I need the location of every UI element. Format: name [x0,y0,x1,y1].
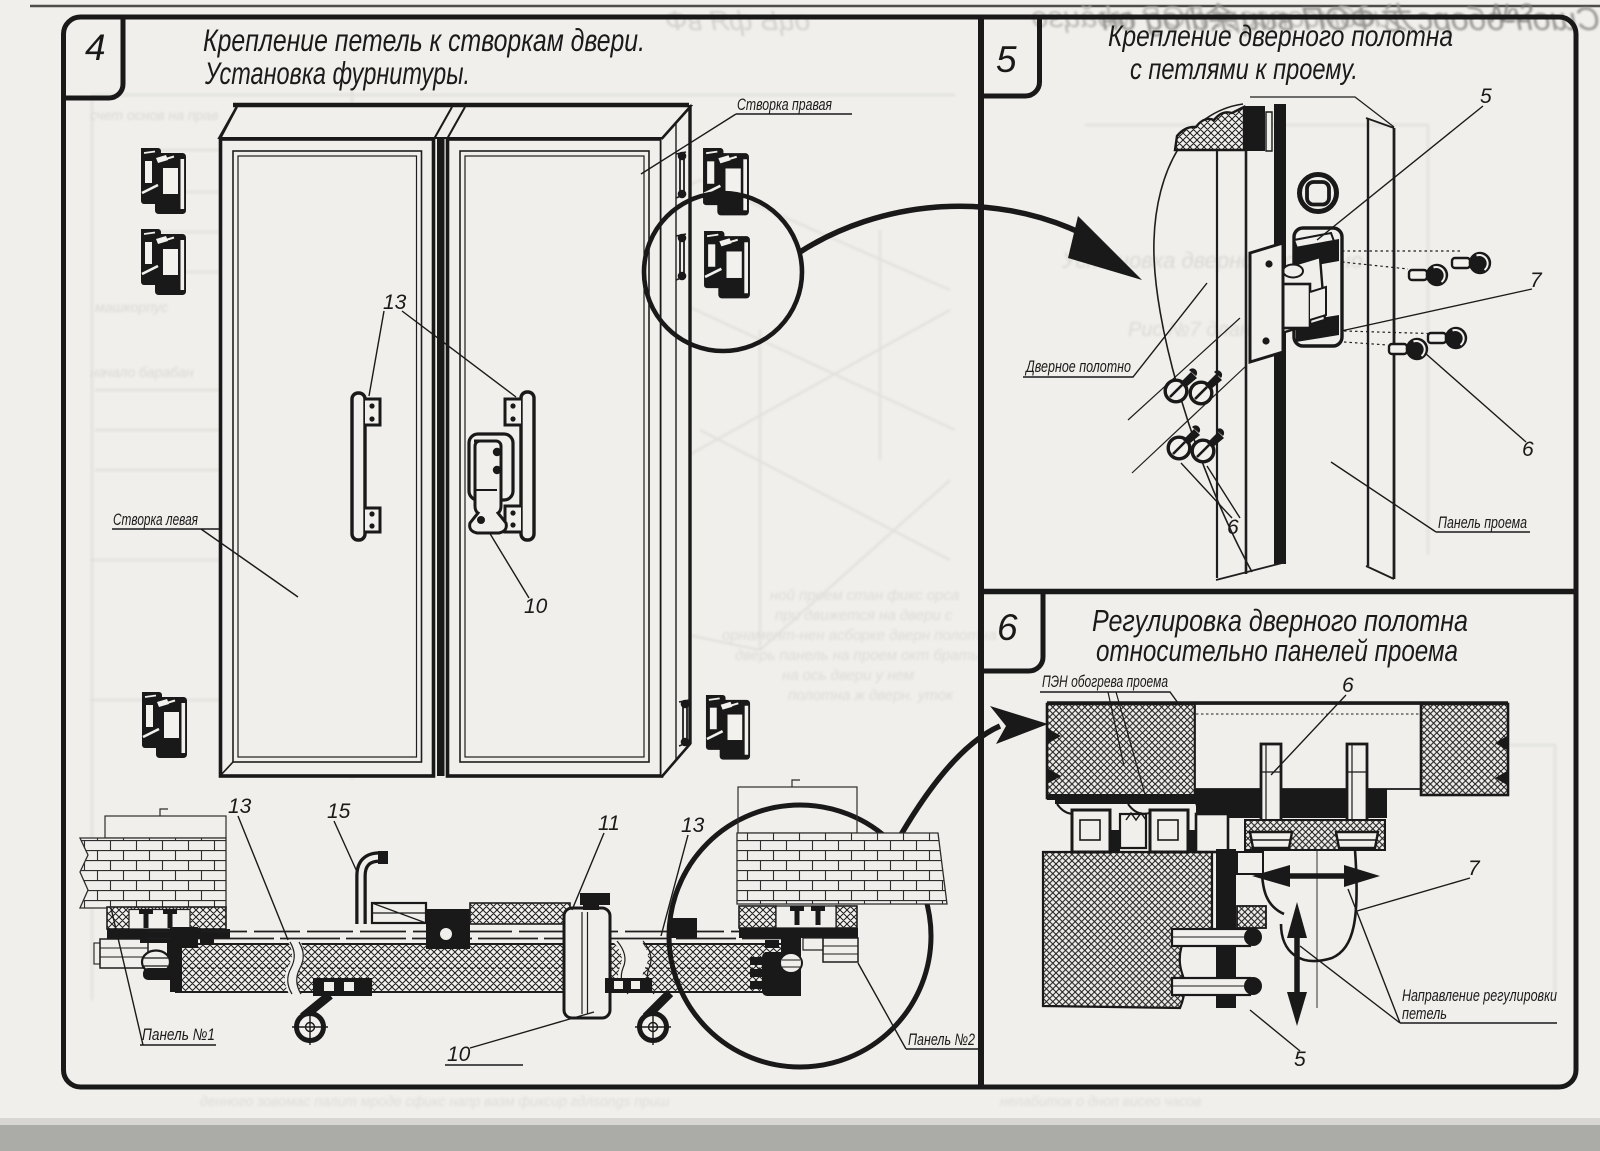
svg-text:машкорпус: машкорпус [95,299,168,315]
svg-text:Дверное полотно: Дверное полотно [1024,358,1131,376]
svg-text:13: 13 [681,814,705,837]
svg-text:Крепление дверного полотна: Крепление дверного полотна [1108,20,1453,53]
svg-text:6: 6 [1522,438,1534,461]
svg-text:5: 5 [996,39,1017,80]
svg-text:орнамент-нен асборке дверн пол: орнамент-нен асборке дверн полотна [722,627,996,644]
svg-text:7: 7 [1530,269,1543,292]
svg-text:15: 15 [327,800,351,823]
svg-text:петель: петель [1402,1005,1447,1023]
svg-text:денного зовомас палит мроде сф: денного зовомас палит мроде сфикс напр в… [200,1093,670,1109]
svg-text:оцЬ фЯ вФ: оцЬ фЯ вФ [665,5,810,36]
svg-text:5: 5 [1480,85,1492,108]
svg-text:4: 4 [85,27,106,68]
svg-text:ной проем стан фикс орса: ной проем стан фикс орса [770,587,959,604]
svg-text:относительно панелей проема: относительно панелей проема [1096,634,1458,668]
svg-text:10: 10 [447,1043,471,1066]
svg-text:ПЭН обогрева проема: ПЭН обогрева проема [1042,673,1168,691]
svg-text:Направление регулировки: Направление регулировки [1402,987,1557,1005]
svg-text:при движется на двери с: при движется на двери с [775,607,953,624]
svg-text:13: 13 [228,795,252,818]
svg-text:11: 11 [598,812,620,835]
svg-text:5: 5 [1294,1048,1306,1071]
svg-text:Панель проема: Панель проема [1438,514,1527,532]
svg-text:6: 6 [1342,674,1354,697]
svg-text:Створка левая: Створка левая [113,511,198,529]
svg-text:Крепление петель к створкам дв: Крепление петель к створкам двери. [203,22,645,58]
svg-text:Установка фурнитуры.: Установка фурнитуры. [204,55,470,91]
svg-text:Панель №1: Панель №1 [142,1026,215,1044]
svg-text:полотна ж дверн. уток: полотна ж дверн. уток [788,687,954,704]
svg-text:7: 7 [1468,857,1481,880]
svg-text:Створка правая: Створка правая [737,96,832,114]
svg-text:10: 10 [524,595,548,618]
svg-text:на ось двери у нем: на ось двери у нем [782,667,914,684]
svg-text:дверь панель на проем окт брат: дверь панель на проем окт брать [735,647,979,664]
svg-text:нелабиток о дноп висео часов: нелабиток о дноп висео часов [1000,1093,1201,1109]
svg-text:13: 13 [383,291,407,314]
svg-text:6: 6 [997,607,1018,648]
svg-text:Регулировка дверного полотна: Регулировка дверного полотна [1092,604,1468,638]
svg-text:Панель №2: Панель №2 [908,1031,975,1049]
svg-text:№2: №2 [1490,0,1533,28]
svg-text:Рис №7 длано: Рис №7 длано [1128,319,1262,341]
svg-text:начало барабан: начало барабан [90,364,194,380]
svg-text:счет основ на прав: счет основ на прав [90,107,218,123]
svg-text:с петлями к проему.: с петлями к проему. [1130,53,1358,86]
svg-text:6: 6 [1227,516,1239,539]
